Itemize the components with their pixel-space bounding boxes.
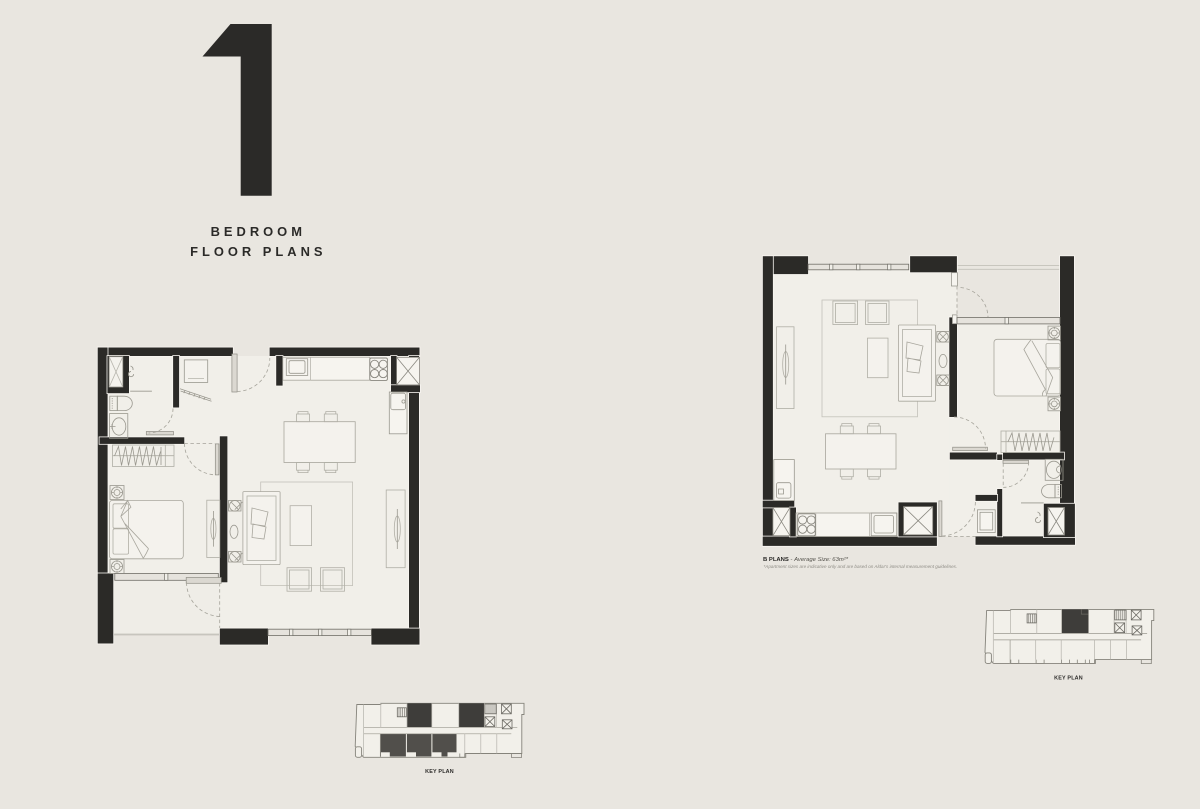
svg-text:*Apartment sizes are indicativ: *Apartment sizes are indicative only and…: [764, 564, 958, 569]
svg-text:KEY PLAN: KEY PLAN: [425, 769, 454, 775]
svg-text:BEDROOM: BEDROOM: [211, 224, 306, 239]
svg-text:FLOOR PLANS: FLOOR PLANS: [190, 244, 326, 259]
svg-text:KEY PLAN: KEY PLAN: [1054, 675, 1083, 681]
svg-text:B PLANS - Average Size: 63m²*: B PLANS - Average Size: 63m²*: [763, 557, 849, 563]
